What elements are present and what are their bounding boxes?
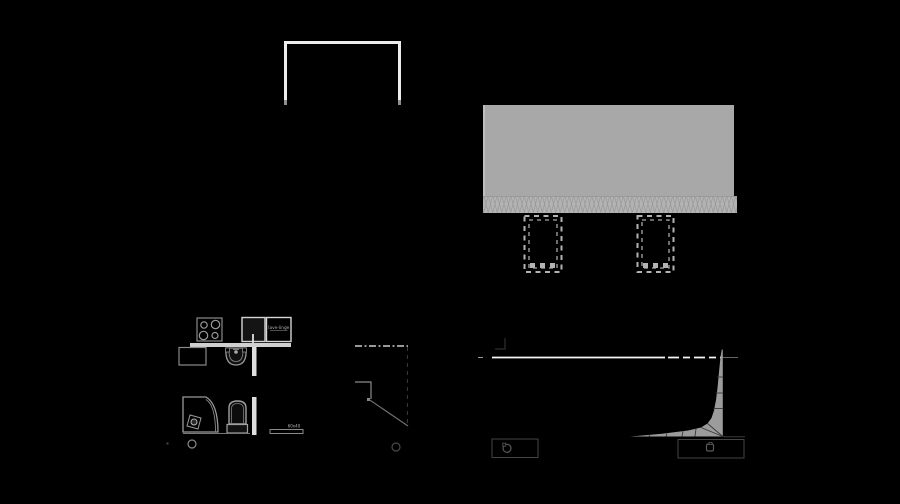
counter <box>190 343 291 347</box>
terrain-wedge <box>630 350 723 437</box>
stamp-logo-icon <box>707 444 714 451</box>
wall-opening-elevation <box>286 43 400 106</box>
roof-slab <box>483 105 734 196</box>
bathroom-plan: 60x40 <box>167 397 304 448</box>
toilet-cistern <box>227 425 248 434</box>
dashed-column-right <box>638 216 674 272</box>
stamp-logo-notch <box>709 443 712 445</box>
basin-drain <box>234 350 238 354</box>
basin-faucet <box>233 348 239 351</box>
drawing-canvas: lave-linge 60x40 <box>0 0 900 504</box>
ground-line-elevation <box>478 338 745 458</box>
step-outline <box>355 382 371 399</box>
column-inner-line <box>642 220 669 268</box>
wall-opening-outline <box>286 43 400 106</box>
toilet <box>227 401 248 433</box>
ramp-diagonal <box>369 400 408 427</box>
insulation-hatch <box>483 196 737 213</box>
washbasin <box>226 348 247 366</box>
towel-shelf <box>270 430 303 434</box>
roof-slab-section <box>483 105 737 213</box>
title-stamp-right <box>678 440 744 459</box>
burner <box>212 333 218 339</box>
column-inner-line <box>529 220 557 268</box>
burner <box>199 331 207 339</box>
drawing-sheet: lave-linge 60x40 <box>0 0 900 504</box>
column-foot <box>550 263 555 268</box>
column-foot <box>653 263 658 268</box>
wedge-facet-lines <box>649 377 723 437</box>
kitchen-island <box>179 348 206 366</box>
appliance-label: lave-linge <box>268 325 289 331</box>
column-foot <box>530 263 535 268</box>
bathroom-wall-stub <box>252 397 257 435</box>
marker-circle <box>392 443 400 451</box>
stair-step-profile <box>355 346 408 451</box>
column-foot <box>540 263 545 268</box>
marker-circle <box>188 440 196 448</box>
title-stamp-left <box>492 439 538 458</box>
terrain-wedge-section <box>630 350 745 437</box>
tiny-dot <box>167 443 169 445</box>
kitchen-plan: lave-linge <box>179 318 291 377</box>
column-foot <box>643 263 648 268</box>
burner <box>211 320 219 328</box>
kitchen-wall-stub <box>252 347 257 376</box>
stamp-logo-notch <box>503 443 506 446</box>
dashed-column-left <box>525 216 562 272</box>
shower-door-arc <box>206 400 216 433</box>
shelf-dimension-label: 60x40 <box>288 424 301 429</box>
basin-corner <box>243 348 247 352</box>
column-foot <box>663 263 668 268</box>
corner-mark <box>495 338 505 349</box>
stamp-frame <box>492 439 538 458</box>
basin-corner <box>226 348 230 352</box>
shower-drain <box>191 419 197 425</box>
burner <box>201 322 207 328</box>
